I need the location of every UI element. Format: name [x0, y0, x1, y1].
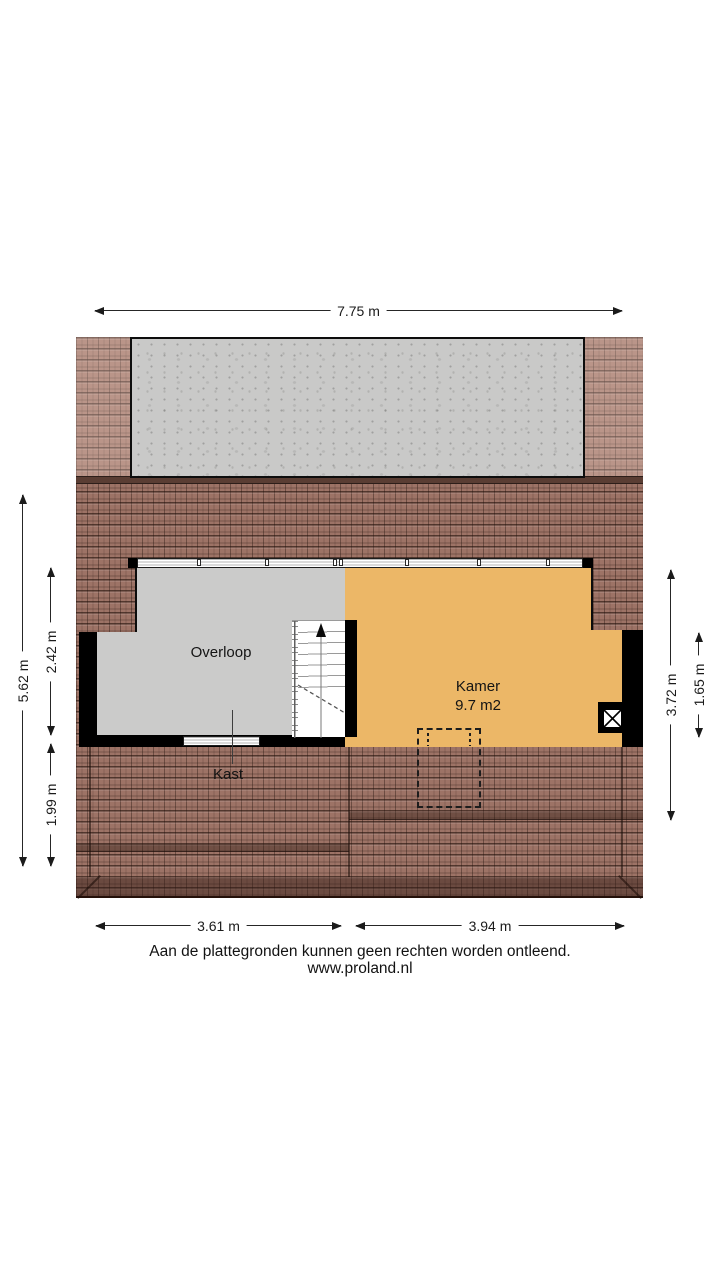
dimension-top: 7.75 m: [95, 310, 622, 311]
roof-window-tick: [469, 733, 471, 746]
dimension-left-kast: 1.99 m: [50, 744, 51, 866]
arrow-left-icon: [95, 922, 105, 930]
dimension-right-kamer-depth: 3.72 m: [670, 570, 671, 820]
roof-fold-band-left: [76, 844, 349, 852]
window-mullion: [265, 559, 269, 566]
dormer-flat-roof: [130, 337, 585, 478]
arrow-left-icon: [355, 922, 365, 930]
wall-corner-block: [583, 558, 593, 568]
kast-leader-line: [232, 710, 233, 764]
dimension-label: 5.62 m: [15, 651, 31, 710]
arrow-down-icon: [47, 726, 55, 736]
window-mullion: [339, 559, 343, 566]
window-band-top: [137, 558, 583, 568]
staircase: [292, 620, 345, 737]
wall-left: [79, 632, 97, 735]
room-label-kamer-area: 9.7 m2: [408, 696, 548, 715]
arrow-up-icon: [19, 494, 27, 504]
dimension-label: 2.42 m: [43, 622, 59, 681]
dimension-label: 1.65 m: [691, 656, 707, 715]
arrow-down-icon: [47, 857, 55, 867]
dimension-label: 3.61 m: [190, 918, 247, 934]
window-mullion: [197, 559, 201, 566]
dimension-right-wall: 1.65 m: [698, 633, 699, 737]
room-label-kamer: Kamer 9.7 m2: [408, 677, 548, 715]
dimension-label: 3.94 m: [462, 918, 519, 934]
arrow-down-icon: [695, 728, 703, 738]
stairs-up-arrow: [292, 621, 345, 738]
footer-website: www.proland.nl: [0, 960, 720, 978]
arrow-down-icon: [19, 857, 27, 867]
window-mullion: [333, 559, 337, 566]
roof-fold-line: [621, 747, 623, 877]
roof-eave: [76, 878, 643, 898]
arrow-up-icon: [667, 569, 675, 579]
room-label-overloop: Overloop: [146, 643, 296, 662]
dimension-label: 7.75 m: [330, 303, 387, 319]
arrow-up-icon: [695, 632, 703, 642]
wall-right: [622, 630, 643, 747]
roof-fold-band-right: [349, 812, 643, 820]
wall-stairwell: [345, 620, 357, 737]
arrow-down-icon: [667, 811, 675, 821]
arrow-up-icon: [47, 743, 55, 753]
window-bottom: [183, 736, 260, 746]
floorplan-canvas: Overloop Kamer 9.7 m2 Kast 7.75 m 3.61 m…: [0, 0, 720, 1280]
dimension-bottom-left: 3.61 m: [96, 925, 341, 926]
dimension-label: 3.72 m: [663, 666, 679, 725]
roof-window-tick: [427, 733, 429, 746]
window-mullion: [477, 559, 481, 566]
room-kamer-upper: [345, 568, 591, 630]
dimension-left-total: 5.62 m: [22, 495, 23, 866]
roof-fold-line: [89, 747, 91, 877]
room-label-kamer-name: Kamer: [408, 677, 548, 696]
roof-fold-line: [348, 747, 350, 877]
footer-disclaimer: Aan de plattegronden kunnen geen rechten…: [0, 943, 720, 961]
dimension-left-overloop: 2.42 m: [50, 568, 51, 735]
arrow-up-icon: [47, 567, 55, 577]
dimension-bottom-right: 3.94 m: [356, 925, 624, 926]
wall-right-upper: [591, 568, 593, 630]
room-label-kast: Kast: [178, 765, 278, 784]
arrow-left-icon: [94, 307, 104, 315]
arrow-right-icon: [613, 307, 623, 315]
arrow-right-icon: [332, 922, 342, 930]
window-mullion: [546, 559, 550, 566]
dimension-label: 1.99 m: [43, 776, 59, 835]
shaft-cross-icon: [603, 709, 622, 728]
window-mullion: [405, 559, 409, 566]
arrow-right-icon: [615, 922, 625, 930]
wall-corner-block: [128, 558, 137, 568]
